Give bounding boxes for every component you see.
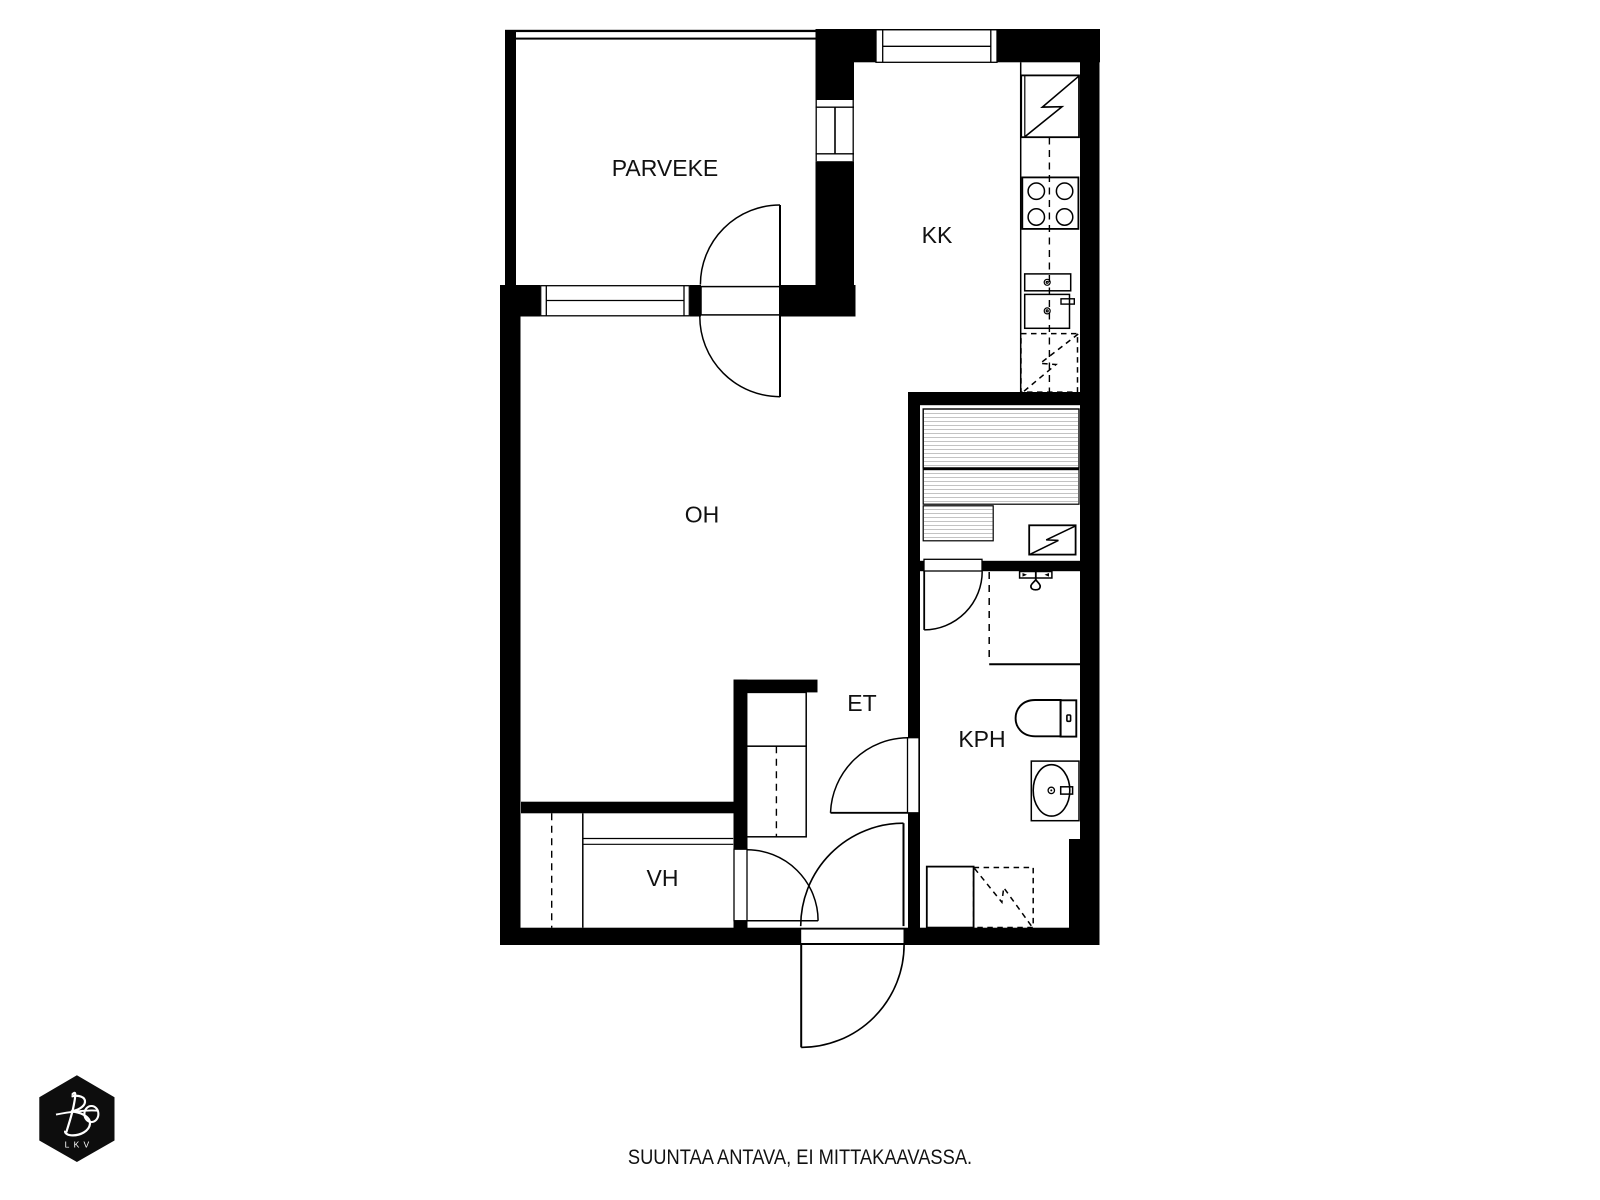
svg-text:SUUNTAA ANTAVA, EI MITTAKAAVAS: SUUNTAA ANTAVA, EI MITTAKAAVASSA.: [628, 1146, 972, 1169]
svg-text:LKV: LKV: [65, 1140, 94, 1150]
svg-text:OH: OH: [685, 502, 720, 528]
svg-text:VH: VH: [647, 865, 679, 891]
svg-text:KK: KK: [922, 222, 953, 248]
svg-text:PARVEKE: PARVEKE: [612, 155, 719, 181]
svg-text:ET: ET: [847, 690, 876, 716]
svg-text:KPH: KPH: [958, 726, 1005, 752]
